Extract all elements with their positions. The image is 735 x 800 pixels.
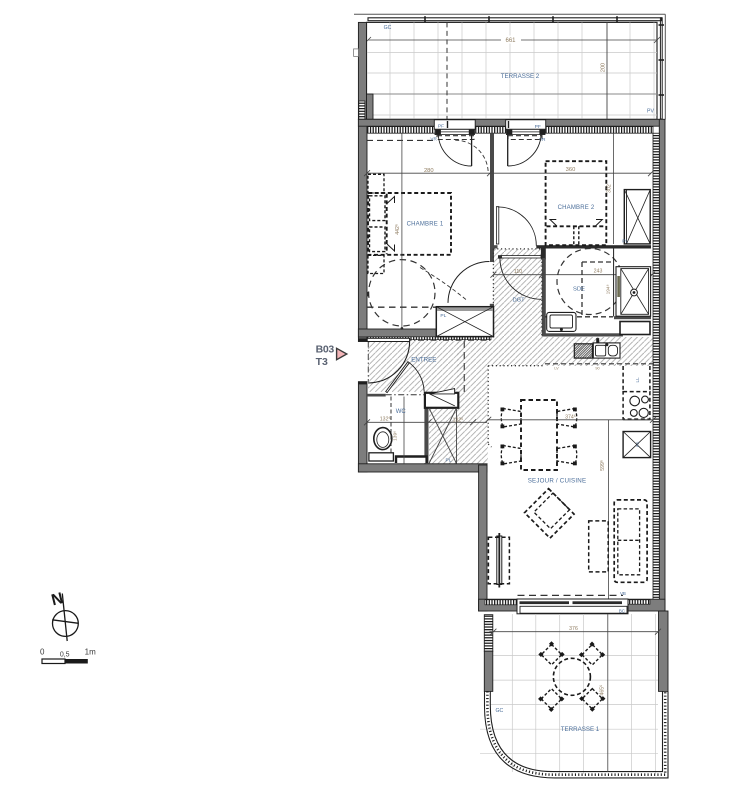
svg-text:194⁶: 194⁶ bbox=[606, 284, 612, 294]
svg-text:VB: VB bbox=[620, 591, 626, 596]
svg-text:200: 200 bbox=[601, 63, 607, 72]
svg-text:SDE: SDE bbox=[573, 287, 585, 293]
svg-text:90: 90 bbox=[595, 366, 599, 370]
svg-text:360: 360 bbox=[566, 167, 576, 173]
svg-text:599⁶: 599⁶ bbox=[600, 460, 606, 471]
svg-text:465⁶: 465⁶ bbox=[600, 685, 606, 696]
svg-text:110: 110 bbox=[514, 269, 522, 275]
svg-text:ENTREE: ENTREE bbox=[411, 357, 436, 364]
svg-text:0,5: 0,5 bbox=[60, 652, 70, 659]
svg-text:GC: GC bbox=[384, 25, 392, 31]
svg-text:PF: PF bbox=[535, 124, 541, 130]
svg-text:LV: LV bbox=[554, 366, 559, 370]
svg-text:302: 302 bbox=[606, 184, 612, 193]
svg-text:661: 661 bbox=[505, 38, 516, 44]
svg-text:132⁶: 132⁶ bbox=[453, 417, 464, 423]
svg-text:0: 0 bbox=[40, 648, 45, 657]
svg-text:FG: FG bbox=[635, 442, 640, 448]
svg-text:T3: T3 bbox=[316, 356, 328, 368]
svg-text:GC: GC bbox=[496, 708, 504, 714]
svg-text:139⁶: 139⁶ bbox=[392, 431, 398, 441]
svg-text:VR: VR bbox=[430, 137, 437, 142]
svg-text:376: 376 bbox=[569, 626, 578, 632]
svg-text:PV: PV bbox=[647, 109, 654, 115]
svg-text:PL: PL bbox=[440, 313, 446, 319]
svg-text:CHAMBRE 2: CHAMBRE 2 bbox=[558, 205, 595, 211]
svg-text:243: 243 bbox=[594, 268, 603, 274]
svg-text:WC: WC bbox=[396, 409, 407, 415]
svg-text:TERRASSE 2: TERRASSE 2 bbox=[501, 73, 540, 80]
svg-text:PL: PL bbox=[622, 238, 628, 244]
svg-text:132⁶: 132⁶ bbox=[380, 417, 391, 423]
svg-text:PF: PF bbox=[438, 124, 444, 130]
svg-text:SEJOUR / CUISINE: SEJOUR / CUISINE bbox=[528, 478, 587, 485]
svg-text:374⁶: 374⁶ bbox=[565, 414, 576, 420]
svg-text:B03: B03 bbox=[316, 343, 335, 355]
svg-text:CHAMBRE 1: CHAMBRE 1 bbox=[407, 221, 444, 227]
svg-text:280: 280 bbox=[424, 168, 434, 174]
svg-text:LL: LL bbox=[635, 377, 640, 383]
svg-text:BC: BC bbox=[619, 608, 625, 613]
svg-text:TERRASSE 1: TERRASSE 1 bbox=[561, 726, 600, 733]
svg-text:DGT: DGT bbox=[512, 298, 525, 304]
svg-text:442⁶: 442⁶ bbox=[395, 224, 401, 235]
svg-text:1m: 1m bbox=[85, 648, 96, 657]
svg-text:PL: PL bbox=[446, 458, 452, 464]
